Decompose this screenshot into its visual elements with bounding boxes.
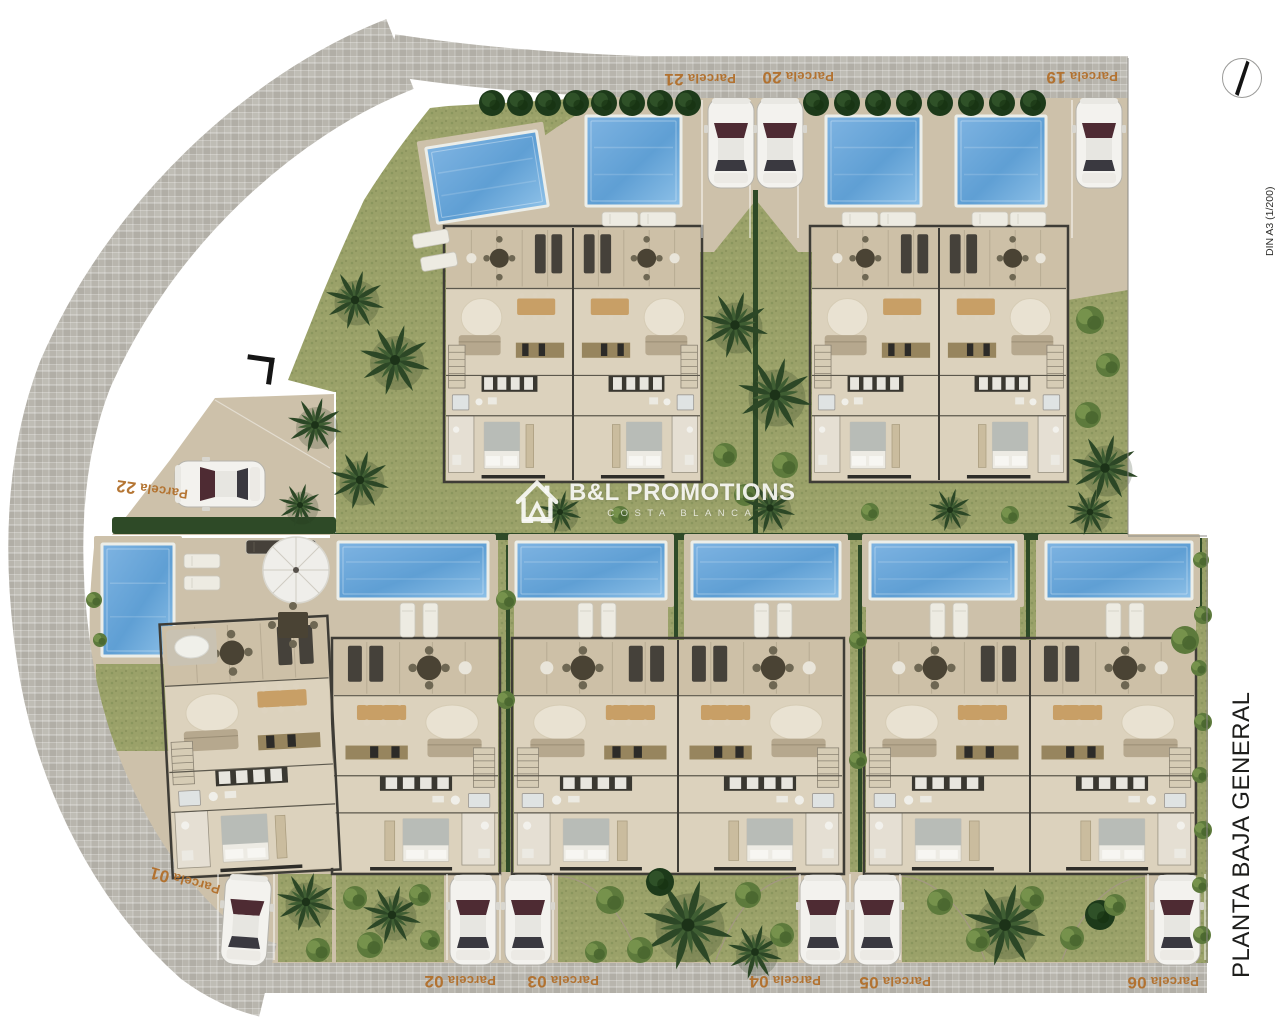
sun-lounger <box>184 576 220 590</box>
sun-lounger <box>953 603 968 637</box>
logo-subtitle: COSTA BLANCA <box>569 508 796 519</box>
bush-icon <box>1076 306 1104 334</box>
swimming-pool <box>862 534 1024 607</box>
bush-icon <box>1194 821 1212 839</box>
tree-icon <box>958 90 984 116</box>
bush-icon <box>585 941 607 963</box>
swimming-pool <box>818 108 929 214</box>
parcel-word: Parcela <box>551 973 599 988</box>
bush-icon <box>93 633 107 647</box>
sun-lounger <box>1129 603 1144 637</box>
bush-icon <box>770 923 794 947</box>
parcel-number: 20 <box>762 68 782 87</box>
villa-unit <box>446 228 573 480</box>
sun-lounger <box>602 212 638 226</box>
bush-icon <box>627 937 653 963</box>
villa-unit <box>573 228 700 480</box>
swimming-pool <box>684 534 848 607</box>
tree-icon <box>619 90 645 116</box>
bush-icon <box>596 886 624 914</box>
residential-building <box>864 638 1196 874</box>
tree-icon <box>989 90 1015 116</box>
parcel-label-20: Parcela 20 <box>762 67 834 87</box>
parcel-number: 02 <box>424 972 444 991</box>
bush-icon <box>86 592 102 608</box>
bush-icon <box>1020 886 1044 910</box>
parcel-word: Parcela <box>1151 974 1199 989</box>
car <box>850 875 904 965</box>
logo-text: B&L PROMOTIONS COSTA BLANCA <box>569 481 796 519</box>
tree-icon <box>646 868 674 896</box>
sun-lounger <box>754 603 769 637</box>
sun-lounger <box>930 603 945 637</box>
tree-icon <box>1020 90 1046 116</box>
tree-icon <box>834 90 860 116</box>
parcel-number: 05 <box>859 973 879 992</box>
bush-icon <box>497 691 515 709</box>
bush-icon <box>1075 402 1101 428</box>
villa-unit <box>866 640 1030 872</box>
parcel-word: Parcela <box>1070 69 1118 84</box>
car <box>753 98 807 188</box>
parcel-number: 21 <box>664 70 684 89</box>
tree-icon <box>479 90 505 116</box>
bush-icon <box>1192 767 1208 783</box>
tree-icon <box>535 90 561 116</box>
sun-lounger <box>400 603 415 637</box>
tree-icon <box>675 90 701 116</box>
villa-unit <box>334 640 498 872</box>
sun-lounger <box>777 603 792 637</box>
parcel-label-03: Parcela 03 <box>527 971 599 991</box>
bush-icon <box>966 928 990 952</box>
parcel-number: 19 <box>1046 68 1066 87</box>
entrance-gate-icon <box>244 354 274 384</box>
sun-lounger <box>880 212 916 226</box>
site-plan-sheet: Parcela 21 Parcela 20 Parcela 19 Parcela… <box>0 0 1280 1024</box>
tree-icon <box>647 90 673 116</box>
tree-icon <box>563 90 589 116</box>
bush-icon <box>496 590 516 610</box>
bush-icon <box>1194 606 1212 624</box>
sun-lounger <box>184 554 220 568</box>
sheet-title: PLANTA BAJA GENERAL <box>1228 692 1256 979</box>
parcel-label-21: Parcela 21 <box>664 69 736 89</box>
developer-logo: B&L PROMOTIONS COSTA BLANCA <box>514 476 796 524</box>
villa-unit <box>514 640 678 872</box>
car <box>216 873 276 967</box>
bush-icon <box>1193 926 1211 944</box>
residential-building <box>512 638 844 874</box>
parcel-label-06: Parcela 06 <box>1127 972 1199 992</box>
bush-icon <box>849 631 867 649</box>
villa-unit <box>939 228 1066 480</box>
villa-unit <box>678 640 842 872</box>
tree-icon <box>865 90 891 116</box>
bush-icon <box>927 889 953 915</box>
sun-lounger <box>423 603 438 637</box>
car <box>1072 98 1126 188</box>
bush-icon <box>1001 506 1019 524</box>
sun-lounger <box>1106 603 1121 637</box>
parcel-label-05: Parcela 05 <box>859 972 931 992</box>
parcel-label-04: Parcela 04 <box>749 971 821 991</box>
villa-unit <box>812 228 939 480</box>
bush-icon <box>343 886 367 910</box>
swimming-pool <box>508 534 674 607</box>
parcel-number: 22 <box>115 476 137 498</box>
sun-lounger <box>640 212 676 226</box>
car <box>704 98 758 188</box>
bush-icon <box>1104 894 1126 916</box>
bush-icon <box>772 452 798 478</box>
tree-icon <box>896 90 922 116</box>
villa-unit <box>1030 640 1194 872</box>
residential-building <box>810 226 1068 482</box>
parcel-number: 06 <box>1127 973 1147 992</box>
parcel-word: Parcela <box>448 973 496 988</box>
bush-icon <box>1171 626 1199 654</box>
swimming-pool <box>330 534 496 607</box>
residential-building <box>332 638 500 874</box>
bush-icon <box>861 503 879 521</box>
tree-icon <box>591 90 617 116</box>
swimming-pool <box>578 108 689 214</box>
bush-icon <box>1096 353 1120 377</box>
bush-icon <box>1191 660 1207 676</box>
sun-lounger <box>1010 212 1046 226</box>
tree-icon <box>803 90 829 116</box>
swimming-pool <box>1038 534 1200 607</box>
car <box>796 875 850 965</box>
sun-lounger <box>578 603 593 637</box>
parcel-word: Parcela <box>786 69 834 84</box>
format-scale-note: DIN A3 (1/200) <box>1264 187 1276 256</box>
car <box>446 875 500 965</box>
car <box>175 457 265 511</box>
parcel-word: Parcela <box>773 973 821 988</box>
residential-building <box>444 226 702 482</box>
bush-icon <box>713 443 737 467</box>
residential-building <box>160 616 341 878</box>
sun-lounger <box>842 212 878 226</box>
bush-icon <box>306 938 330 962</box>
north-compass-icon <box>1218 54 1266 102</box>
logo-name: B&L PROMOTIONS <box>569 481 796 505</box>
parcel-number: 03 <box>527 972 547 991</box>
parcel-word: Parcela <box>688 71 736 86</box>
parcel-word: Parcela <box>139 480 189 502</box>
bush-icon <box>420 930 440 950</box>
bush-icon <box>849 751 867 769</box>
house-logo-icon <box>514 476 560 524</box>
parcel-label-02: Parcela 02 <box>424 971 496 991</box>
bush-icon <box>735 882 761 908</box>
bush-icon <box>1192 877 1208 893</box>
sun-lounger <box>601 603 616 637</box>
bush-icon <box>357 932 383 958</box>
bush-icon <box>1194 713 1212 731</box>
parcel-number: 04 <box>749 972 769 991</box>
parcel-word: Parcela <box>883 974 931 989</box>
parcel-label-19: Parcela 19 <box>1046 67 1118 87</box>
tree-icon <box>927 90 953 116</box>
swimming-pool <box>948 108 1054 214</box>
tree-icon <box>507 90 533 116</box>
bush-icon <box>409 884 431 906</box>
car <box>501 875 555 965</box>
sun-lounger <box>972 212 1008 226</box>
bush-icon <box>1060 926 1084 950</box>
